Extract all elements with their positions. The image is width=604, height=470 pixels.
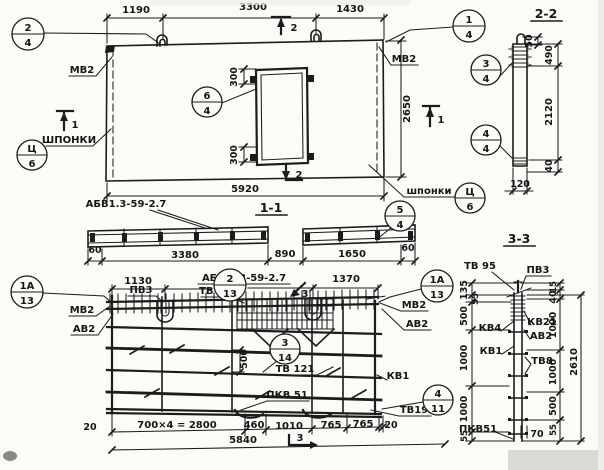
pv3-label: ПВ3 bbox=[130, 285, 153, 296]
callout-6-4: 6 4 bbox=[192, 87, 222, 117]
callout-2-13-num: 2 bbox=[227, 274, 234, 285]
pkv51-plan-label: ПКВ 51 bbox=[266, 390, 308, 401]
callout-c6-left-sheet: 6 bbox=[29, 159, 36, 170]
callout-2-4-num: 2 bbox=[25, 23, 32, 34]
dim-left-1000b: 1000 bbox=[459, 395, 470, 422]
callout-4-11-sheet: 11 bbox=[431, 404, 445, 415]
base-block-2-2 bbox=[513, 158, 527, 164]
plan-total-dim-line bbox=[112, 444, 445, 450]
left-dim-line-3-3 bbox=[466, 283, 517, 441]
door-anchor-tabs bbox=[250, 75, 314, 161]
title-2-2: 2-2 bbox=[535, 6, 558, 21]
section-2-2-view: 2-2 50 490 2120 40 120 bbox=[500, 6, 562, 194]
title-1-1: 1-1 bbox=[260, 200, 283, 215]
dim-300-top: 300 bbox=[229, 67, 240, 87]
callout-5-4: 5 4 bbox=[385, 201, 415, 231]
kv4-label: КВ4 bbox=[479, 323, 502, 334]
mv2-left-plan-label: МВ2 bbox=[70, 305, 95, 316]
callout-3-4-leader bbox=[500, 62, 513, 76]
slab-left-outline bbox=[88, 227, 268, 247]
kv1-33-label: КВ1 bbox=[480, 346, 503, 357]
dim-40: 40 bbox=[544, 159, 555, 173]
callout-4-11: 4 11 bbox=[423, 385, 453, 415]
dim-1650: 1650 bbox=[338, 249, 366, 260]
dim-2610: 2610 bbox=[569, 348, 580, 376]
column-outline-3-3 bbox=[514, 293, 522, 441]
kv1-plan-label: КВ1 bbox=[387, 371, 410, 382]
section-mark-1-right-arrow bbox=[426, 107, 434, 117]
plan-loop-1 bbox=[157, 301, 173, 322]
callout-6-4-num: 6 bbox=[204, 91, 211, 102]
av2-right-plan-label: АВ2 bbox=[406, 319, 428, 330]
section-mark-1-left-arrow bbox=[60, 112, 68, 121]
shponki-left-label: ШПОНКИ bbox=[42, 135, 96, 146]
dim-1190: 1190 bbox=[122, 5, 150, 16]
callout-c6-right-num: Ц bbox=[465, 187, 474, 198]
callout-1-4-num: 1 bbox=[466, 15, 473, 26]
dim-700x4: 700×4 = 2800 bbox=[137, 420, 216, 431]
callout-3-14-sheet: 14 bbox=[278, 353, 292, 364]
dim-765-b: 765 bbox=[353, 419, 374, 430]
callout-4-4-num: 4 bbox=[483, 129, 490, 140]
callout-3-14-num: 3 bbox=[282, 338, 289, 349]
dim-20-right: 20 bbox=[384, 420, 398, 431]
section-1-1-view: 1-1 АБВ1.3-59-2.7 60 3380 890 1650 60 bbox=[85, 199, 418, 265]
pkv51-33-label: ПКВ51 bbox=[459, 424, 497, 435]
callout-1-4-leader bbox=[386, 27, 453, 42]
callout-1a-13-left-num: 1А bbox=[20, 281, 35, 292]
dim-50: 50 bbox=[524, 34, 535, 48]
dim-120: 120 bbox=[510, 179, 530, 190]
dim-5920: 5920 bbox=[231, 184, 259, 195]
scan-shadow-right-edge bbox=[598, 0, 604, 470]
callout-4-11-num: 4 bbox=[435, 389, 442, 400]
scan-shadow-bottom-right bbox=[508, 450, 604, 470]
dim-1370: 1370 bbox=[332, 274, 360, 285]
series-label-1-1: АБВ1.3-59-2.7 bbox=[86, 199, 167, 210]
blueprint-sheet: 1190 3300 1430 2 2 1 1 МВ2 МВ2 300 300 2… bbox=[0, 0, 604, 470]
callout-2-4-leader bbox=[44, 33, 160, 44]
title-3-3: 3-3 bbox=[508, 231, 531, 246]
dim-right-1000b: 1000 bbox=[548, 358, 559, 385]
mark-3-bottom-label: 3 bbox=[297, 433, 304, 444]
section-2-bottom-label: 2 bbox=[296, 170, 303, 181]
callout-3-4: 3 4 bbox=[471, 55, 501, 85]
panel-outline bbox=[106, 40, 384, 181]
dim-20-left: 20 bbox=[83, 422, 97, 433]
panel-joint-dashes bbox=[113, 43, 377, 179]
callout-4-4: 4 4 bbox=[471, 125, 501, 155]
callout-4-4-leader bbox=[500, 146, 512, 158]
callout-5-4-sheet: 4 bbox=[397, 220, 404, 231]
callout-c6-right-sheet: 6 bbox=[467, 202, 474, 213]
shponki-right-label: шпонки bbox=[406, 186, 451, 197]
dim-460: 460 bbox=[244, 420, 265, 431]
callout-4-4-sheet: 4 bbox=[483, 144, 490, 155]
pv3-33-label: ПВ3 bbox=[527, 265, 550, 276]
elevation-view: 1190 3300 1430 2 2 1 1 МВ2 МВ2 300 300 2… bbox=[42, 2, 456, 201]
section-3-3-view: 3-3 ТВ 95 ПВ3 135 55 500 1000 1000 55 КВ… bbox=[459, 231, 584, 444]
mv2-left-label: МВ2 bbox=[70, 65, 95, 76]
dim-right-40: 40 bbox=[548, 290, 559, 304]
door-opening-inner bbox=[261, 73, 303, 160]
plan-bar-row-3 bbox=[107, 370, 381, 378]
section-2-top-label: 2 bbox=[291, 23, 298, 34]
dim-3380: 3380 bbox=[171, 250, 199, 261]
callout-6-4-leader bbox=[222, 89, 256, 103]
callout-3-4-sheet: 4 bbox=[483, 74, 490, 85]
callout-1-4: 1 4 bbox=[453, 10, 485, 42]
callout-2-4-sheet: 4 bbox=[25, 38, 32, 49]
dim-left-55a: 55 bbox=[471, 293, 481, 305]
dim-left-1000a: 1000 bbox=[459, 344, 470, 371]
dim-500: 500 bbox=[239, 349, 250, 369]
callout-1a-13-right-sheet: 13 bbox=[430, 290, 444, 301]
callout-c6-left-num: Ц bbox=[27, 144, 36, 155]
dim-765-a: 765 bbox=[321, 420, 342, 431]
section-1-left-label: 1 bbox=[72, 120, 79, 131]
av2-left-plan-label: АВ2 bbox=[73, 324, 95, 335]
column-outline-2-2 bbox=[513, 44, 527, 166]
panel-drawing-svg: 1190 3300 1430 2 2 1 1 МВ2 МВ2 300 300 2… bbox=[0, 0, 604, 470]
scan-smudge bbox=[3, 451, 17, 461]
callout-1a-13-right-num: 1А bbox=[430, 275, 445, 286]
dim-300-bottom: 300 bbox=[229, 145, 240, 165]
mv2-right-label: МВ2 bbox=[392, 54, 417, 65]
section-mark-2-top-arrow bbox=[277, 18, 285, 27]
series-label-leaders bbox=[150, 210, 218, 230]
callout-2-13: 2 13 bbox=[214, 269, 246, 301]
callout-2-13-sheet: 13 bbox=[223, 289, 237, 300]
dim-60-left: 60 bbox=[88, 245, 102, 256]
mv2-right-plan-label: МВ2 bbox=[402, 300, 427, 311]
dim-1430: 1430 bbox=[336, 4, 364, 15]
top-dim-line bbox=[107, 14, 384, 43]
scan-smudge-top bbox=[150, 0, 410, 5]
dim-2120: 2120 bbox=[544, 98, 555, 126]
tv95-label: ТВ 95 bbox=[464, 261, 496, 272]
dim-left-500: 500 bbox=[459, 306, 470, 326]
section-1-right-label: 1 bbox=[438, 115, 445, 126]
callout-1a-13-left: 1А 13 bbox=[11, 276, 43, 308]
callout-2-4: 2 4 bbox=[12, 18, 44, 50]
callout-1-4-sheet: 4 bbox=[466, 30, 473, 41]
callout-1a-13-right: 1А 13 bbox=[421, 270, 453, 302]
door-opening-outline bbox=[256, 68, 308, 165]
callout-c6-right: Ц 6 bbox=[455, 183, 485, 213]
dim-right-500: 500 bbox=[548, 396, 559, 416]
callout-6-4-sheet: 4 bbox=[204, 106, 211, 117]
dim-60-right: 60 bbox=[401, 243, 415, 254]
dim-490: 490 bbox=[544, 45, 555, 65]
callout-5-4-num: 5 bbox=[397, 205, 404, 216]
tv121-label: ТВ 121 bbox=[276, 364, 315, 375]
dim-2650: 2650 bbox=[402, 95, 413, 123]
dim-70: 70 bbox=[530, 429, 544, 440]
dim-1010: 1010 bbox=[275, 421, 303, 432]
dim-right-55: 55 bbox=[549, 424, 559, 436]
callout-3-4-num: 3 bbox=[483, 59, 490, 70]
plan-view: 1130 1370 АБВ 1.3-59-2.7 ПВ3 ТВ 44 МВ2 А… bbox=[43, 273, 448, 453]
callout-1a-13-left-sheet: 13 bbox=[20, 296, 34, 307]
section-mark-3-bottom-arrow bbox=[310, 441, 318, 449]
dim-5840: 5840 bbox=[229, 435, 257, 446]
plan-bar-row-1 bbox=[107, 327, 381, 334]
dim-890: 890 bbox=[275, 249, 296, 260]
dim-right-1000a: 1000 bbox=[548, 311, 559, 338]
callout-3-14: 3 14 bbox=[270, 334, 300, 364]
mark-3-top-label: 3 bbox=[302, 289, 309, 300]
top-ties-3-3 bbox=[511, 296, 525, 320]
dim-left-135: 135 bbox=[459, 280, 470, 300]
callout-c6-left: Ц 6 bbox=[17, 140, 47, 170]
dense-mesh-block bbox=[237, 299, 333, 329]
